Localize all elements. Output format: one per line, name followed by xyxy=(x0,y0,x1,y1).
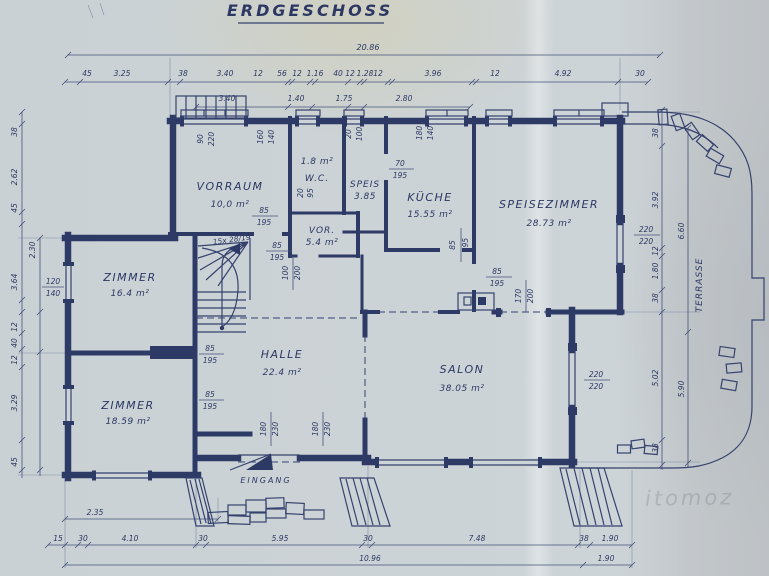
dim-label: 195 xyxy=(203,402,218,411)
window xyxy=(343,110,364,127)
window xyxy=(63,385,74,425)
staircase: 15x 28/19 xyxy=(196,232,251,332)
window xyxy=(375,457,448,468)
dim-label: 95 xyxy=(306,188,315,198)
window xyxy=(485,110,512,127)
dim-label: 38 xyxy=(10,127,19,137)
dim-label: 38 xyxy=(178,69,188,78)
dim-label: 195 xyxy=(270,253,285,262)
room-area: 22.4 m² xyxy=(263,368,302,378)
dim-label: 45 xyxy=(10,203,19,213)
room-area: 15.55 m² xyxy=(407,210,452,220)
dim-label: 20.86 xyxy=(357,43,380,52)
dim-label: 12 xyxy=(292,69,302,78)
pencil-marks xyxy=(88,3,104,18)
room-area: 28.73 m² xyxy=(526,219,571,229)
ramp-hatch-center xyxy=(340,478,390,526)
dim-label: 1.80 xyxy=(651,262,660,279)
stair-treads xyxy=(196,292,246,324)
dim-label: 12 xyxy=(10,355,19,365)
dim-label: 40 xyxy=(10,338,19,348)
door-jamb xyxy=(616,215,625,223)
room-area: 10,0 m² xyxy=(211,200,250,210)
dim-label: 40 xyxy=(333,69,343,78)
room-label-terrasse: TERRASSE xyxy=(695,258,705,313)
dim-label: 140 xyxy=(46,289,61,298)
dim-label: 1.16 xyxy=(307,69,324,78)
dim-label: 3.40 xyxy=(217,69,234,78)
room-label: VORRAUM xyxy=(196,180,263,193)
dim-label: 10.96 xyxy=(359,554,381,563)
terrace: TERRASSE xyxy=(576,103,764,468)
dim-label: 30 xyxy=(635,69,645,78)
dim-label: 220 xyxy=(639,225,654,234)
stone xyxy=(250,513,266,522)
dim-label: 195 xyxy=(257,218,272,227)
dim-label: 5.90 xyxy=(677,380,686,397)
detail-dims: 85 195 85 195 85 195 85 195 85 195 85 19… xyxy=(196,126,660,446)
dim-label: 38 xyxy=(651,128,660,138)
window xyxy=(469,457,542,468)
dim-label: 195 xyxy=(461,238,470,253)
room-area: 3.85 xyxy=(354,192,376,202)
dim-label: 2.35 xyxy=(87,508,104,517)
window xyxy=(92,471,152,481)
terrace-stones-right xyxy=(719,347,742,391)
room-label: W.C. xyxy=(305,174,329,184)
room-area: 38.05 m² xyxy=(439,384,484,394)
dim-label: 12 xyxy=(10,322,19,332)
stair-arrow-start xyxy=(220,326,224,330)
dim-label: 45 xyxy=(10,457,19,467)
dim-label: 30 xyxy=(198,534,208,543)
hatch-lines xyxy=(346,478,380,525)
dim-label: 20 xyxy=(296,188,305,198)
stone xyxy=(266,509,286,518)
dim-label: 200 xyxy=(293,266,302,281)
terrace-outline xyxy=(576,112,764,468)
dim-label: 195 xyxy=(203,356,218,365)
room-label: KÜCHE xyxy=(407,191,452,204)
dim-label: 230 xyxy=(271,422,280,437)
room-label: ZIMMER xyxy=(102,271,156,284)
dim-label: 12 xyxy=(345,69,355,78)
dim-label: 180 xyxy=(259,422,268,437)
dim-label: 45 xyxy=(82,69,92,78)
dim-label: 12 xyxy=(253,69,263,78)
dim-label: 85 xyxy=(205,344,215,353)
blueprint-sheet: ERDGESCHOSS 20.86 45 3.25 38 3.40 12 56 … xyxy=(0,0,769,576)
window xyxy=(553,110,604,127)
dim-label: 170 xyxy=(514,289,523,304)
dim-label: 140 xyxy=(426,126,435,141)
stone xyxy=(631,439,645,449)
stone xyxy=(228,516,250,525)
dim-label: 70 xyxy=(395,159,405,168)
dim-label: 140 xyxy=(267,130,276,145)
dim-label: 220 xyxy=(589,370,604,379)
terrace-door xyxy=(569,350,575,408)
dim-label: 100 xyxy=(281,266,290,281)
door-jamb xyxy=(568,343,577,351)
dim-label: 1.40 xyxy=(288,94,305,103)
flue-filled xyxy=(478,297,486,305)
room-area: 5.4 m² xyxy=(306,238,339,248)
dim-label: 38 xyxy=(651,443,660,453)
room-label: SPEIS xyxy=(350,180,380,190)
dim-label: 12 xyxy=(490,69,500,78)
terrace-pillar xyxy=(602,103,628,116)
stone xyxy=(671,113,685,130)
dim-label: 195 xyxy=(490,279,505,288)
dim-label: 5.02 xyxy=(651,369,660,386)
door-jamb xyxy=(568,407,577,415)
stone xyxy=(618,445,631,453)
room-label-eingang: EINGANG xyxy=(240,476,291,485)
stone xyxy=(286,503,305,515)
dim-label: 180 xyxy=(311,422,320,437)
dim-label: 230 xyxy=(323,422,332,437)
stone xyxy=(304,510,324,519)
room-area: 16.4 m² xyxy=(111,289,150,299)
room-area: 1.8 m² xyxy=(301,157,334,167)
dim-label: 3.25 xyxy=(114,69,131,78)
window xyxy=(425,110,468,127)
stone xyxy=(706,148,723,163)
dim-label: 200 xyxy=(526,289,535,304)
dim-label: 85 xyxy=(272,241,282,250)
stone xyxy=(726,363,742,373)
stone xyxy=(266,498,284,509)
dim-label: 85 xyxy=(448,240,457,250)
dim-label: 7.48 xyxy=(469,534,486,543)
dim-label: 12 xyxy=(651,246,660,256)
flue-open xyxy=(464,297,471,305)
dim-label: 195 xyxy=(393,171,408,180)
stone xyxy=(228,505,246,515)
dim-label: 2.80 xyxy=(396,94,413,103)
dim-label: 220 xyxy=(589,382,604,391)
dim-label: 220 xyxy=(639,237,654,246)
room-label: ZIMMER xyxy=(100,399,154,412)
dim-label: 4.10 xyxy=(122,534,139,543)
dim-label: 38 xyxy=(579,534,589,543)
room-area: 18.59 m² xyxy=(105,417,150,427)
dim-label: 160 xyxy=(256,130,265,145)
room-label: SALON xyxy=(440,363,485,376)
dim-label: 4.92 xyxy=(555,69,572,78)
dim-label: 30 xyxy=(78,534,88,543)
entrance-stones xyxy=(208,498,324,525)
dim-label: 56 xyxy=(277,69,287,78)
stair-arrow-head xyxy=(229,243,240,255)
dim-label: 6.60 xyxy=(677,222,686,239)
dim-label: 1.28 xyxy=(357,69,374,78)
dim-label: 180 xyxy=(415,126,424,141)
steps-outline xyxy=(560,468,622,526)
hatch-lines xyxy=(566,468,612,525)
dim-label: 20 xyxy=(344,129,353,139)
dim-label: 15 xyxy=(53,534,63,543)
dim-label: 38 xyxy=(651,293,660,303)
dim-label: 1.90 xyxy=(598,554,615,563)
stone xyxy=(719,347,735,358)
dim-label: 2.62 xyxy=(10,168,19,185)
dim-label: 85 xyxy=(205,390,215,399)
dim-label: 1.75 xyxy=(336,94,353,103)
room-label: VOR. xyxy=(309,226,335,236)
dim-label: 1.90 xyxy=(602,534,619,543)
stone xyxy=(715,165,732,178)
terrace-stones-top xyxy=(658,109,732,177)
dim-label: 120 xyxy=(46,277,61,286)
terrace-door xyxy=(617,222,623,266)
window xyxy=(63,262,74,303)
dim-label: 12 xyxy=(373,69,383,78)
dim-label: 90 xyxy=(196,134,205,144)
dim-label: 2.30 xyxy=(28,241,37,258)
dim-label: 85 xyxy=(492,267,502,276)
terrace-garden-steps xyxy=(560,468,622,526)
chimney-block xyxy=(150,346,195,359)
dim-label: 100 xyxy=(355,127,364,142)
dim-label: 3.96 xyxy=(425,69,442,78)
watermark: itomoz xyxy=(645,485,735,511)
page-title: ERDGESCHOSS xyxy=(227,1,393,20)
window xyxy=(295,110,320,127)
stone xyxy=(721,379,737,390)
dim-label: 3.64 xyxy=(10,273,19,290)
door-jamb xyxy=(616,265,625,273)
dim-label: 220 xyxy=(207,132,216,147)
dim-label: 5.95 xyxy=(272,534,289,543)
dim-label: 85 xyxy=(259,206,269,215)
dim-label: 3.92 xyxy=(651,191,660,208)
dim-label: 3.29 xyxy=(10,394,19,411)
room-label: SPEISEZIMMER xyxy=(499,198,599,211)
stone xyxy=(246,500,266,512)
room-label: HALLE xyxy=(261,348,304,361)
dim-label: 3.40 xyxy=(219,94,236,103)
